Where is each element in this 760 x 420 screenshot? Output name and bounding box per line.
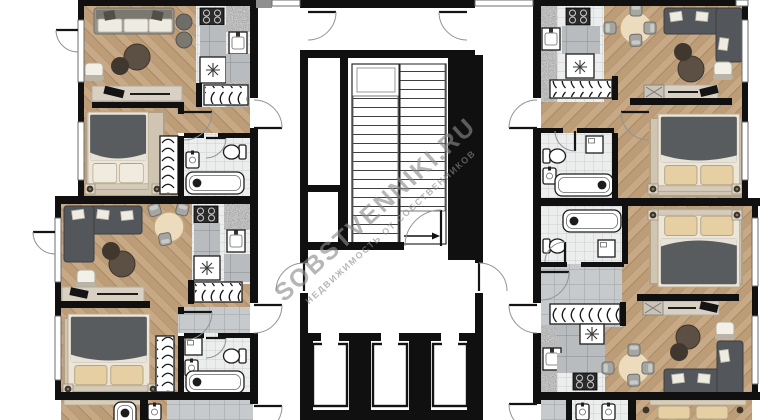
pouf (176, 14, 192, 30)
kitchen-cabinets (194, 223, 220, 256)
wall (742, 82, 748, 122)
window (78, 20, 84, 82)
wall (300, 293, 308, 333)
washing-machine (586, 136, 603, 153)
wardrobe-rack (205, 86, 247, 104)
toilet (543, 239, 566, 253)
plant-icon (585, 327, 599, 341)
toilet (224, 349, 247, 363)
wall (178, 307, 184, 314)
chair (604, 22, 616, 34)
door-a2-entry (254, 305, 282, 333)
door-lower-right (509, 404, 537, 420)
wall (300, 242, 404, 250)
plant-icon (200, 261, 214, 275)
chair (175, 202, 190, 217)
elevator-car (313, 344, 347, 406)
wall (300, 333, 321, 341)
bathtub (186, 371, 244, 393)
window (752, 218, 758, 286)
bed (88, 112, 148, 189)
wardrobe-rack (195, 283, 241, 301)
door-lobby-right (479, 263, 507, 291)
chair (628, 374, 640, 386)
wall (349, 341, 371, 410)
kitchen-cabinets (200, 25, 226, 57)
plant-icon (573, 60, 587, 74)
wall (55, 282, 61, 316)
shower-unit (185, 338, 202, 355)
elevator-car (373, 344, 407, 406)
toilet (224, 145, 247, 159)
wall (622, 206, 628, 264)
wall (541, 128, 563, 133)
wall (140, 400, 148, 420)
wall (541, 0, 738, 6)
kitchen-cabinets (226, 54, 250, 82)
wall (178, 107, 184, 114)
elevator-door (322, 342, 338, 346)
door-lobby-left (276, 263, 304, 291)
stove (194, 206, 218, 223)
balcony-door (736, 0, 748, 6)
window (272, 0, 300, 6)
coffee-table (670, 343, 688, 361)
chair (158, 232, 172, 246)
bed (658, 210, 740, 287)
stove (573, 373, 597, 390)
wall (300, 0, 475, 8)
bathroom-sink (576, 403, 589, 420)
coffee-table (674, 43, 692, 61)
wall (628, 400, 636, 420)
bathroom-sink (186, 151, 199, 169)
bathtub (563, 210, 621, 232)
toilet (543, 149, 566, 163)
stove (566, 8, 590, 25)
window (55, 218, 61, 282)
elevators (313, 342, 467, 406)
kitchen-cabinets (224, 254, 250, 282)
tv-console (62, 287, 144, 302)
wardrobe-rack (551, 81, 611, 97)
elevator-door (382, 342, 398, 346)
wall (300, 341, 313, 410)
wall (78, 0, 258, 6)
wall (533, 333, 541, 404)
chair (642, 362, 654, 374)
kitchen-sink (229, 32, 247, 54)
bathroom-sink (148, 403, 161, 420)
media-wall (637, 294, 739, 301)
wall (339, 333, 381, 341)
plant-icon (206, 63, 220, 77)
wall (250, 0, 258, 98)
bed (68, 314, 150, 391)
chair (630, 34, 642, 46)
wall (55, 204, 61, 218)
kitchen-sink (227, 230, 245, 252)
nightstand-lamp (737, 407, 744, 414)
door-b2-entry (509, 305, 537, 333)
bathtub (114, 402, 136, 420)
armchair (713, 62, 733, 80)
sofa (94, 8, 174, 34)
wall (196, 83, 202, 107)
window (742, 122, 748, 180)
coffee-table (102, 242, 120, 260)
wall (300, 410, 483, 420)
floor-partial-hall-left (167, 400, 253, 420)
wall (577, 128, 614, 133)
granite-counter (224, 204, 250, 230)
bed-headboard (64, 400, 148, 405)
door-hall-left (308, 12, 336, 40)
floor-plan: SOBSTVENNIKI.RU НЕДВИЖИМОСТЬ ОТ СОБСТВЕН… (0, 0, 760, 420)
wall (752, 206, 758, 218)
armchair (76, 270, 96, 288)
elevator-door (442, 342, 458, 346)
nightstand-lamp (643, 407, 650, 414)
door-a1-entry (254, 100, 282, 128)
coffee-table (111, 57, 129, 75)
window (78, 122, 84, 180)
wall (188, 280, 194, 304)
wall (409, 341, 431, 410)
armchair (84, 63, 104, 81)
bathroom-sink (602, 403, 615, 420)
elevator-car (433, 344, 467, 406)
wall (581, 262, 624, 267)
pillow (658, 406, 690, 419)
wall (78, 0, 84, 20)
media-wall (630, 98, 732, 105)
wall (459, 333, 483, 341)
nightstand (648, 184, 658, 194)
armchair (715, 322, 735, 340)
wardrobe-rack (551, 305, 619, 323)
wall (467, 341, 483, 410)
media-wall (56, 301, 150, 308)
wall (475, 55, 483, 263)
wall (55, 392, 258, 400)
wall (178, 336, 184, 392)
door-b1-entry (509, 100, 537, 128)
wall (533, 0, 541, 98)
wall (78, 82, 84, 122)
nightstand (648, 210, 658, 220)
staircase (352, 64, 446, 244)
kitchen-cabinets (557, 353, 605, 373)
wall (300, 58, 308, 263)
wall (742, 180, 748, 198)
wall (250, 128, 258, 303)
door-balcony-a1 (56, 30, 78, 52)
wall (475, 293, 483, 333)
media-wall (92, 102, 184, 108)
kitchen-cabinets (562, 26, 600, 54)
stair-flight (400, 64, 445, 211)
balcony-divider (256, 0, 272, 8)
kitchen-sink (542, 28, 560, 50)
chair (628, 344, 640, 356)
wall (533, 392, 760, 400)
chair (602, 362, 614, 374)
granite-counter (226, 6, 250, 32)
washing-machine (598, 240, 615, 257)
window (55, 316, 61, 380)
door-hall-right (439, 12, 467, 40)
window (475, 0, 533, 6)
wall (612, 133, 618, 200)
wall (533, 128, 541, 303)
bed (658, 114, 740, 191)
tv-console (92, 86, 182, 101)
door-lower-left (254, 406, 282, 420)
wall (566, 400, 572, 420)
pouf (176, 32, 192, 48)
bathtub (555, 174, 613, 196)
wall (300, 185, 346, 192)
wall (78, 180, 84, 198)
tv-console (644, 85, 719, 99)
nightstand (732, 184, 742, 194)
stove (200, 8, 224, 25)
wardrobe-rack (161, 137, 177, 193)
window (752, 316, 758, 384)
wall (338, 192, 346, 247)
wall (620, 302, 626, 326)
wall (399, 333, 441, 341)
tv-console (643, 301, 719, 315)
wall (612, 76, 618, 100)
nightstand (732, 210, 742, 220)
bathroom-sink (543, 167, 556, 185)
wall (541, 262, 567, 267)
wall (533, 198, 760, 206)
bed-headboard (650, 400, 746, 405)
window (742, 20, 748, 82)
floor-plan-drawing (0, 0, 760, 420)
wall (250, 333, 258, 404)
wall (178, 136, 184, 196)
pillow (696, 406, 728, 419)
wardrobe-rack (157, 337, 173, 391)
stair-flight (353, 96, 398, 243)
door-balcony-a2 (33, 232, 55, 254)
wall (752, 286, 758, 316)
chair (644, 22, 656, 34)
bathtub (186, 172, 244, 194)
nightstand (85, 184, 95, 194)
wall (55, 196, 258, 204)
